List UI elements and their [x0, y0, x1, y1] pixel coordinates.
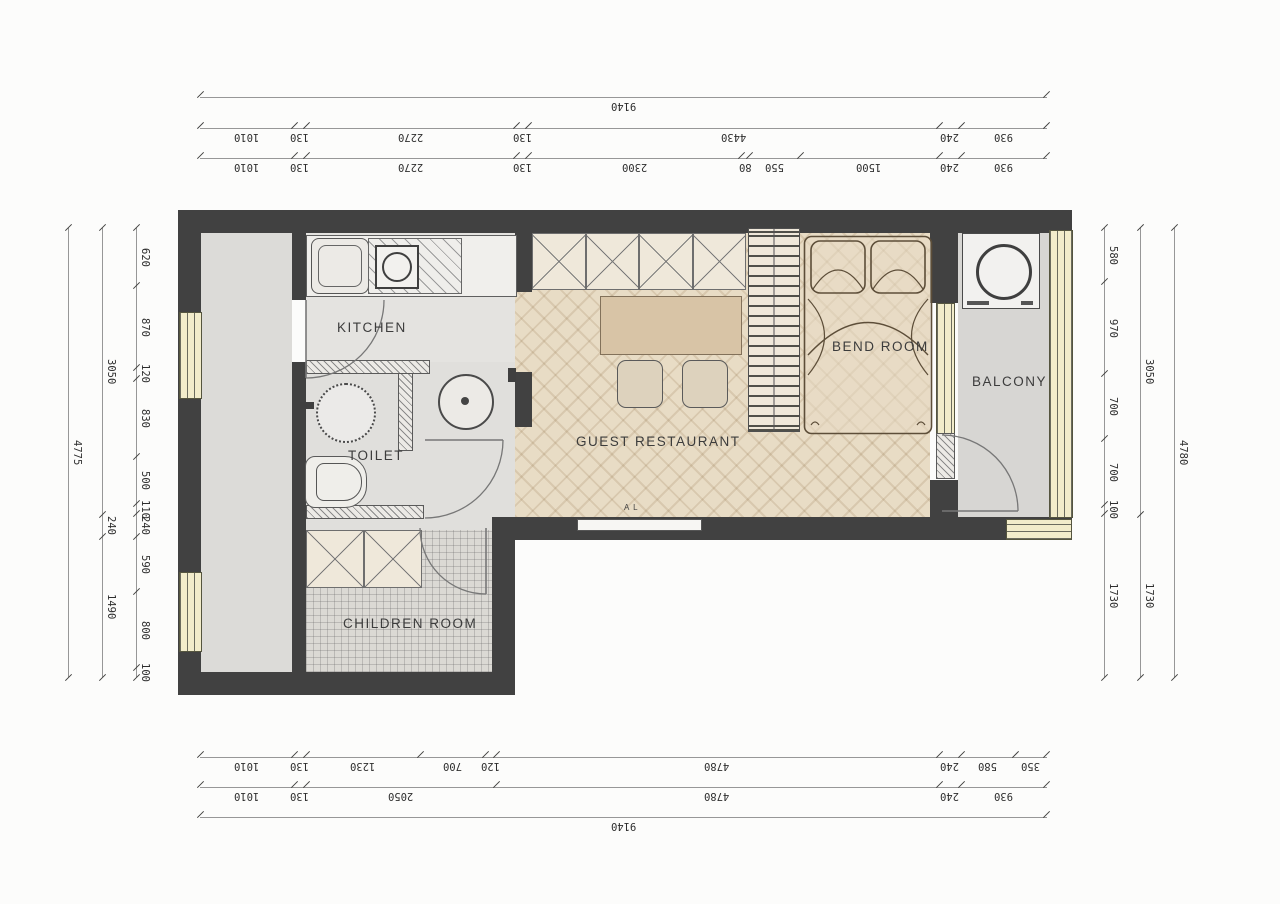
dim-label: 1010: [234, 760, 259, 772]
window-balcony-right: [1049, 230, 1073, 518]
dim-segment: 2300: [528, 159, 741, 183]
double-bed: [803, 235, 933, 435]
dim-label: 830: [139, 409, 150, 428]
dim-label: 4775: [71, 440, 82, 465]
dim-label: 550: [765, 161, 784, 173]
shower-head: [316, 383, 376, 443]
dim-label: 620: [139, 248, 150, 267]
dim-segment: 970: [1105, 282, 1131, 373]
dim-label: 4780: [704, 760, 729, 772]
dim-segment: 1010: [200, 788, 294, 812]
dim-label: 800: [139, 621, 150, 640]
dim-segment: 240: [137, 514, 163, 537]
window-bedroom-balcony: [936, 303, 955, 435]
wardrobe-rack: [748, 228, 800, 432]
dim-label: 240: [940, 161, 959, 173]
dim-segment: 9140: [200, 818, 1047, 842]
dim-segment: 80: [741, 159, 748, 183]
dim-chain-top-row2: 1010 130 2270 130 4430 240 930: [200, 128, 1047, 153]
toilet-label: TOILET: [348, 448, 404, 463]
dim-segment: 4430: [528, 129, 939, 153]
bend-room-label: BEND ROOM: [832, 339, 929, 354]
dim-segment: 1230: [306, 758, 420, 782]
wall-bottom-left: [178, 672, 515, 695]
dim-label: 350: [1021, 760, 1040, 772]
shower-tap: [300, 402, 314, 409]
dim-segment: 3050: [103, 228, 129, 515]
dim-segment: 870: [137, 286, 163, 368]
dim-label: 1010: [234, 161, 259, 173]
dim-segment: 4780: [1175, 228, 1201, 677]
cabinet-box: [693, 233, 747, 290]
dim-label: 2050: [388, 790, 413, 802]
dim-label: 3050: [1143, 359, 1154, 384]
wall-kitchen-entry-stub: [292, 233, 306, 300]
dim-segment: 1730: [1141, 515, 1167, 678]
window-tag: A L: [624, 503, 639, 512]
dim-segment: 130: [516, 159, 528, 183]
restaurant-cabinets: [532, 233, 746, 290]
floor-plan-canvas: A L: [0, 0, 1280, 904]
wash-basin: [438, 374, 494, 430]
wall-bedroom-balcony-upper: [930, 233, 958, 303]
dim-label: 240: [940, 131, 959, 143]
wall-kitchen-restaurant-upper: [515, 233, 532, 292]
dim-segment: 110: [137, 504, 163, 514]
toilet-fixture: [305, 456, 367, 508]
window-left-lower: [179, 572, 202, 652]
wardrobe-box: [364, 530, 422, 588]
dim-segment: 4780: [496, 788, 939, 812]
dim-label: 930: [994, 131, 1013, 143]
dim-chain-top-overall: 9140: [200, 97, 1047, 122]
wardrobe-box: [306, 530, 364, 588]
dim-chain-bottom-row1: 1010 130 1230 700 120 4780 240 580 350: [200, 757, 1047, 782]
dim-label: 580: [978, 760, 997, 772]
dim-segment: 130: [294, 159, 306, 183]
children-room-door: [420, 528, 486, 594]
dim-label: 580: [1107, 246, 1118, 265]
cabinet-box: [586, 233, 640, 290]
wall-children-right: [492, 517, 515, 695]
dim-chain-right-inner: 580 970 700 700 100 1730: [1104, 228, 1131, 677]
dim-label: 870: [139, 318, 150, 337]
dim-segment: 240: [939, 788, 961, 812]
dim-segment: 100: [137, 668, 163, 677]
dim-segment: 350: [1015, 758, 1047, 782]
dim-segment: 550: [749, 159, 800, 183]
dim-segment: 130: [294, 758, 306, 782]
dim-segment: 1500: [800, 159, 939, 183]
dim-segment: 1010: [200, 159, 294, 183]
stool-2: [682, 360, 728, 408]
washing-machine: [962, 233, 1040, 309]
dim-label: 1730: [1143, 583, 1154, 608]
dim-segment: 4780: [496, 758, 939, 782]
dim-segment: 130: [294, 788, 306, 812]
dim-segment: 930: [961, 129, 1047, 153]
dim-segment: 1010: [200, 129, 294, 153]
dim-segment: 4775: [69, 228, 95, 677]
dim-chain-left-overall: 4775: [68, 228, 95, 677]
dim-segment: 580: [961, 758, 1015, 782]
dim-label: 9140: [611, 100, 636, 112]
dim-label: 1230: [350, 760, 375, 772]
stool-1: [617, 360, 663, 408]
kitchen-door: [306, 300, 384, 378]
dim-segment: 2270: [306, 129, 516, 153]
wall-toilet-inner: [398, 373, 413, 451]
dim-label: 4430: [721, 131, 746, 143]
dim-label: 700: [1107, 463, 1118, 482]
dim-segment: 1010: [200, 758, 294, 782]
dim-chain-top-row3: 1010 130 2270 130 2300 80 550 1500 240 9…: [200, 158, 1047, 183]
dim-segment: 240: [939, 758, 961, 782]
wall-top: [178, 210, 1072, 233]
dim-segment: 800: [137, 592, 163, 667]
dim-label: 700: [443, 760, 462, 772]
kitchen-label: KITCHEN: [337, 320, 407, 335]
dim-label: 240: [105, 516, 116, 535]
dim-label: 100: [139, 663, 150, 682]
dim-label: 9140: [611, 820, 636, 832]
dim-segment: 2050: [306, 788, 496, 812]
dim-segment: 2270: [306, 159, 516, 183]
wall-children-left: [292, 517, 306, 672]
basin-tap: [508, 368, 516, 382]
entry-corridor-floor: [201, 233, 292, 672]
dim-segment: 700: [1105, 374, 1131, 440]
guest-restaurant-label: GUEST RESTAURANT: [576, 434, 741, 449]
dim-label: 240: [940, 760, 959, 772]
dim-segment: 130: [294, 129, 306, 153]
dim-label: 2270: [398, 131, 423, 143]
dim-segment: 120: [485, 758, 496, 782]
dim-segment: 580: [1105, 228, 1131, 282]
dim-segment: 700: [1105, 439, 1131, 505]
dim-segment: 240: [939, 159, 961, 183]
dim-label: 4780: [704, 790, 729, 802]
dim-label: 590: [139, 555, 150, 574]
cabinet-box: [639, 233, 693, 290]
dim-segment: 700: [420, 758, 485, 782]
dim-segment: 1490: [103, 537, 129, 677]
toilet-door: [425, 440, 503, 518]
dim-chain-right-mid: 3050 1730: [1140, 228, 1167, 677]
dim-label: 930: [994, 161, 1013, 173]
dim-label: 1490: [105, 594, 116, 619]
dim-label: 240: [940, 790, 959, 802]
dim-label: 2300: [622, 161, 647, 173]
dim-segment: 9140: [200, 98, 1047, 122]
dining-table: [600, 296, 742, 355]
dim-segment: 930: [961, 788, 1047, 812]
dim-segment: 240: [939, 129, 961, 153]
dim-label: 1730: [1107, 583, 1118, 608]
dim-segment: 3050: [1141, 228, 1167, 515]
dim-segment: 1730: [1105, 514, 1131, 677]
dim-label: 240: [139, 516, 150, 535]
dim-label: 930: [994, 790, 1013, 802]
dim-chain-left-mid: 3050 240 1490: [102, 228, 129, 677]
window-recess-bottom: [577, 519, 702, 531]
children-wardrobe: [306, 530, 422, 588]
balcony-label: BALCONY: [972, 374, 1047, 389]
dim-label: 500: [139, 471, 150, 490]
dim-segment: 240: [103, 515, 129, 538]
dim-label: 2270: [398, 161, 423, 173]
dim-segment: 830: [137, 379, 163, 457]
balcony-door: [942, 435, 1018, 511]
dim-label: 3050: [105, 359, 116, 384]
dim-chain-bottom-row2: 1010 130 2050 4780 240 930: [200, 787, 1047, 812]
dim-chain-left-inner: 620 870 120 830 500 110 240 590 800 100: [136, 228, 163, 677]
dim-segment: 930: [961, 159, 1047, 183]
dim-segment: 500: [137, 457, 163, 504]
dim-segment: 120: [137, 368, 163, 379]
children-room-label: CHILDREN ROOM: [343, 616, 477, 631]
dim-label: 970: [1107, 319, 1118, 338]
cabinet-box: [532, 233, 586, 290]
dim-chain-bottom-overall: 9140: [200, 817, 1047, 842]
dim-segment: 590: [137, 537, 163, 592]
dim-label: 1010: [234, 131, 259, 143]
kitchen-stove: [375, 245, 419, 289]
wall-toilet-restaurant-mid: [515, 372, 532, 427]
kitchen-sink: [311, 238, 369, 294]
dim-label: 700: [1107, 397, 1118, 416]
window-balcony-bottom: [1006, 519, 1072, 540]
wall-toilet-left: [292, 362, 306, 517]
dim-label: 4780: [1177, 440, 1188, 465]
window-left-upper: [179, 312, 202, 399]
dim-label: 1010: [234, 790, 259, 802]
dim-segment: 620: [137, 228, 163, 286]
dim-segment: 100: [1105, 505, 1131, 514]
dim-chain-right-overall: 4780: [1174, 228, 1201, 677]
dim-segment: 130: [516, 129, 528, 153]
dim-label: 1500: [856, 161, 881, 173]
